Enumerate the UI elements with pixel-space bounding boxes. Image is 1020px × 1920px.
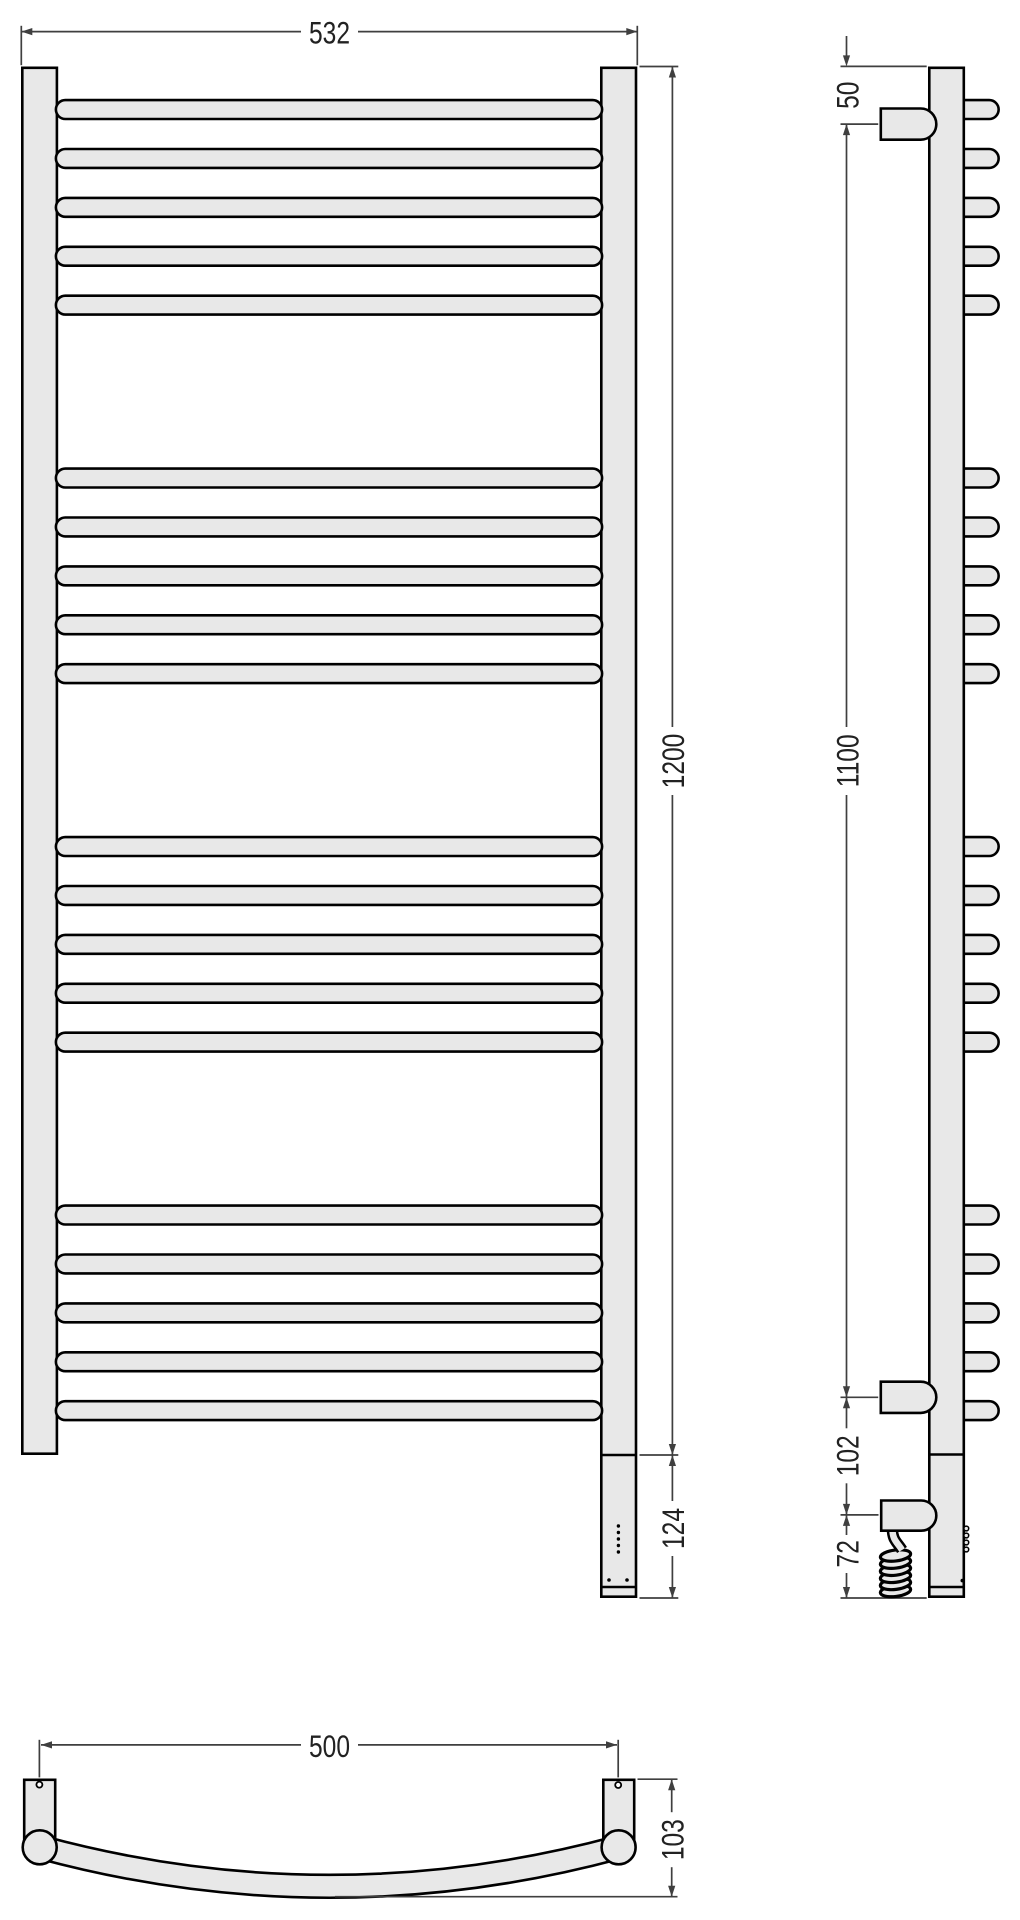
svg-text:50: 50 [829, 82, 865, 109]
svg-text:500: 500 [309, 1728, 350, 1764]
svg-text:102: 102 [829, 1435, 865, 1476]
svg-text:1200: 1200 [655, 734, 691, 789]
svg-text:124: 124 [655, 1508, 691, 1549]
svg-text:103: 103 [655, 1819, 691, 1860]
svg-text:1100: 1100 [829, 734, 865, 787]
svg-text:532: 532 [309, 14, 350, 50]
svg-text:72: 72 [829, 1540, 865, 1567]
